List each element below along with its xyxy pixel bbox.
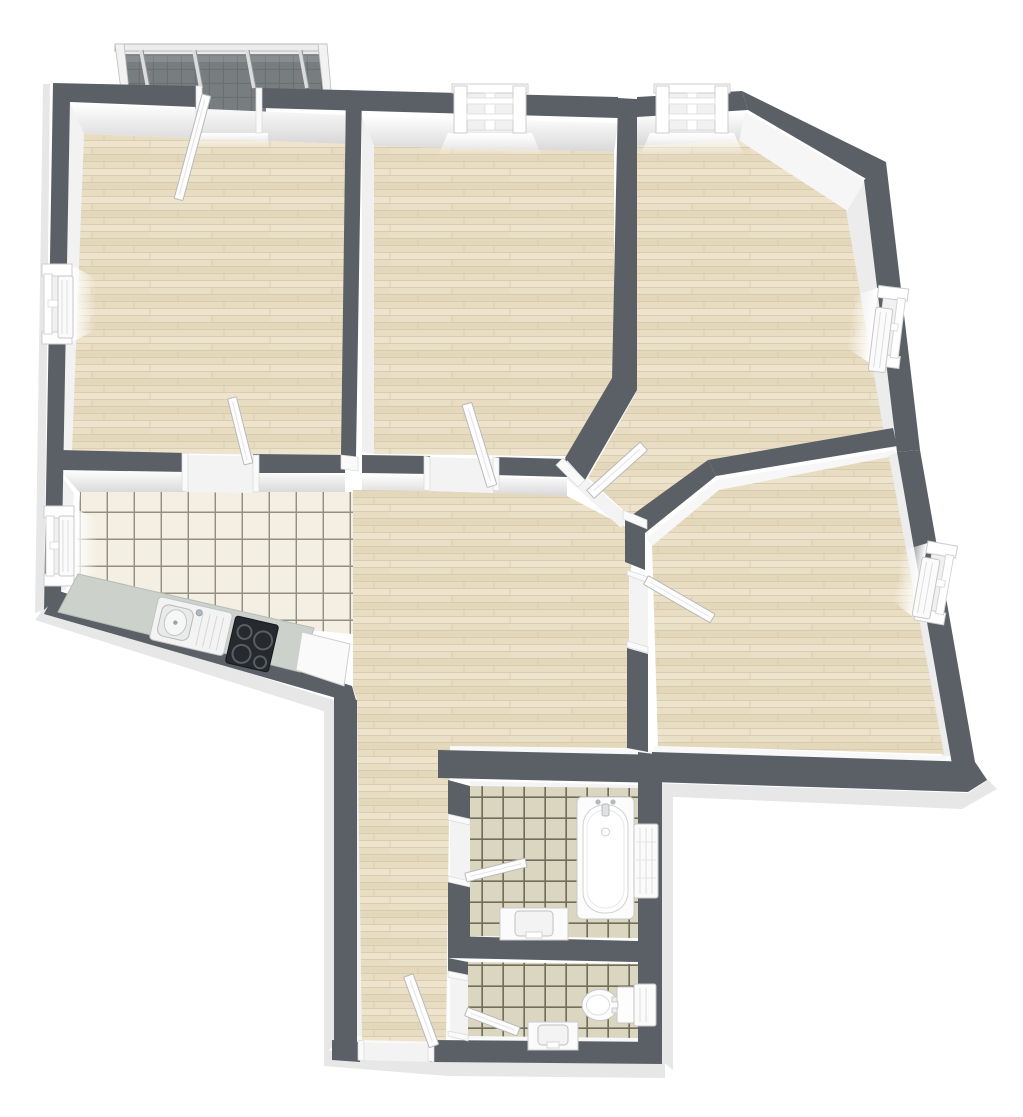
tub-tap	[610, 799, 615, 804]
wall-room-b-hall-right	[493, 457, 567, 477]
wall-hall-d-lower	[627, 648, 648, 752]
divider-wall-b-c	[612, 98, 637, 390]
radiator-bathroom	[634, 824, 658, 898]
top-wall-left-b	[262, 88, 618, 118]
wall-room-b-hall-left	[362, 455, 430, 474]
radiator-wc	[634, 984, 656, 1026]
radiator-bedroom-window	[58, 276, 73, 338]
bathroom-top-wall	[438, 750, 662, 783]
bathtub	[577, 797, 634, 919]
radiator-kitchen-window	[59, 516, 74, 576]
floors	[72, 134, 944, 1042]
floorplan-canvas	[0, 0, 1023, 1117]
hall-left-wall	[334, 694, 357, 1044]
toilet-tank	[617, 987, 634, 1023]
window-room-c-top	[640, 84, 744, 156]
tub-tap	[595, 799, 600, 804]
floorplan-svg	[0, 0, 1023, 1117]
bedroom-top-left-floor	[72, 134, 345, 456]
toilet	[582, 987, 634, 1023]
tub-spout	[602, 804, 609, 816]
window-room-b-top	[438, 84, 542, 156]
wall-bedroom-kitchen-left	[60, 450, 188, 472]
vanity-faucet	[526, 932, 542, 938]
wall-bedroom-kitchen-right	[253, 454, 345, 473]
bathroom-vanity	[500, 908, 568, 940]
room-top-middle-floor	[374, 146, 614, 456]
bathroom-left-wall-upper	[448, 780, 470, 820]
wc-hand-basin	[528, 1022, 578, 1050]
bathroom-left-wall-lower	[448, 878, 470, 940]
